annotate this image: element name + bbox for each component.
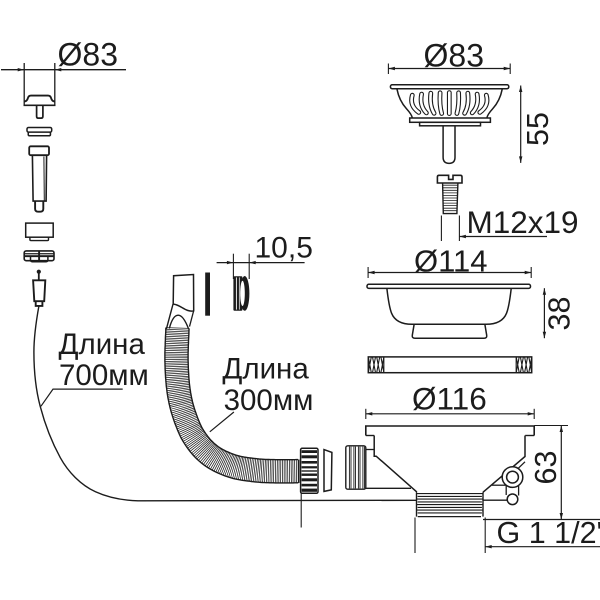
svg-text:700мм: 700мм bbox=[59, 359, 149, 392]
svg-text:300мм: 300мм bbox=[224, 384, 314, 417]
svg-text:Ø83: Ø83 bbox=[58, 36, 118, 72]
svg-text:M12x19: M12x19 bbox=[467, 204, 579, 240]
svg-text:Ø116: Ø116 bbox=[412, 381, 487, 417]
svg-text:55: 55 bbox=[521, 112, 555, 146]
svg-text:Длина: Длина bbox=[222, 353, 309, 386]
svg-text:63: 63 bbox=[529, 451, 563, 485]
svg-text:Длина: Длина bbox=[59, 328, 146, 361]
svg-text:38: 38 bbox=[543, 297, 577, 331]
svg-text:G 1 1/2': G 1 1/2' bbox=[497, 516, 600, 550]
svg-text:10,5: 10,5 bbox=[255, 232, 313, 265]
